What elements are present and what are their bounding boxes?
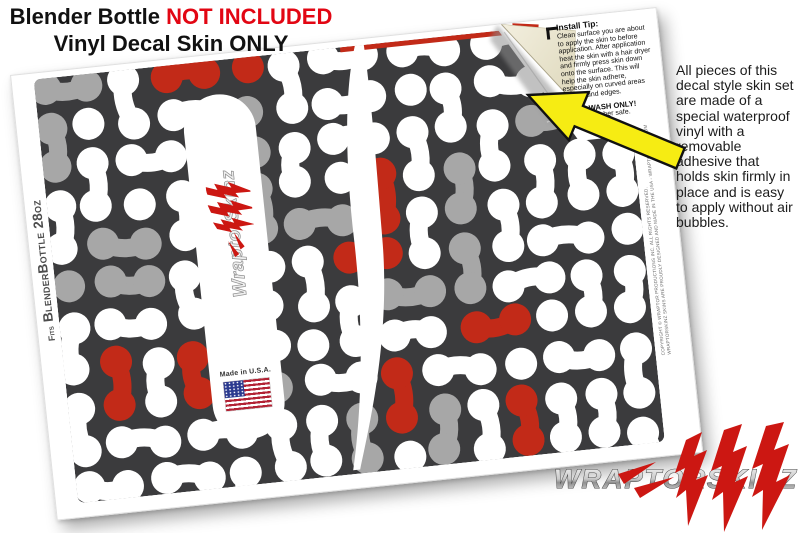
header-title-red: NOT INCLUDED — [166, 4, 332, 29]
us-flag-canton — [223, 380, 245, 398]
install-tip-body: Clean surface you are about to apply the… — [557, 24, 656, 102]
product-image-page: Blender Bottle NOT INCLUDED Vinyl Decal … — [0, 0, 799, 533]
side-note: All pieces of this decal style skin set … — [676, 63, 796, 230]
header: Blender Bottle NOT INCLUDED Vinyl Decal … — [6, 4, 336, 57]
us-flag-icon — [223, 378, 272, 412]
header-line1: Blender Bottle NOT INCLUDED — [6, 4, 336, 30]
header-title-black: Blender Bottle — [10, 4, 160, 29]
header-subtitle: Vinyl Decal Skin ONLY — [6, 31, 336, 57]
brand-logo: WRAPTORSKINZ — [550, 420, 799, 533]
fits-prefix: Fits — [46, 326, 57, 342]
install-tip: Install Tip: Clean surface you are about… — [556, 13, 658, 122]
